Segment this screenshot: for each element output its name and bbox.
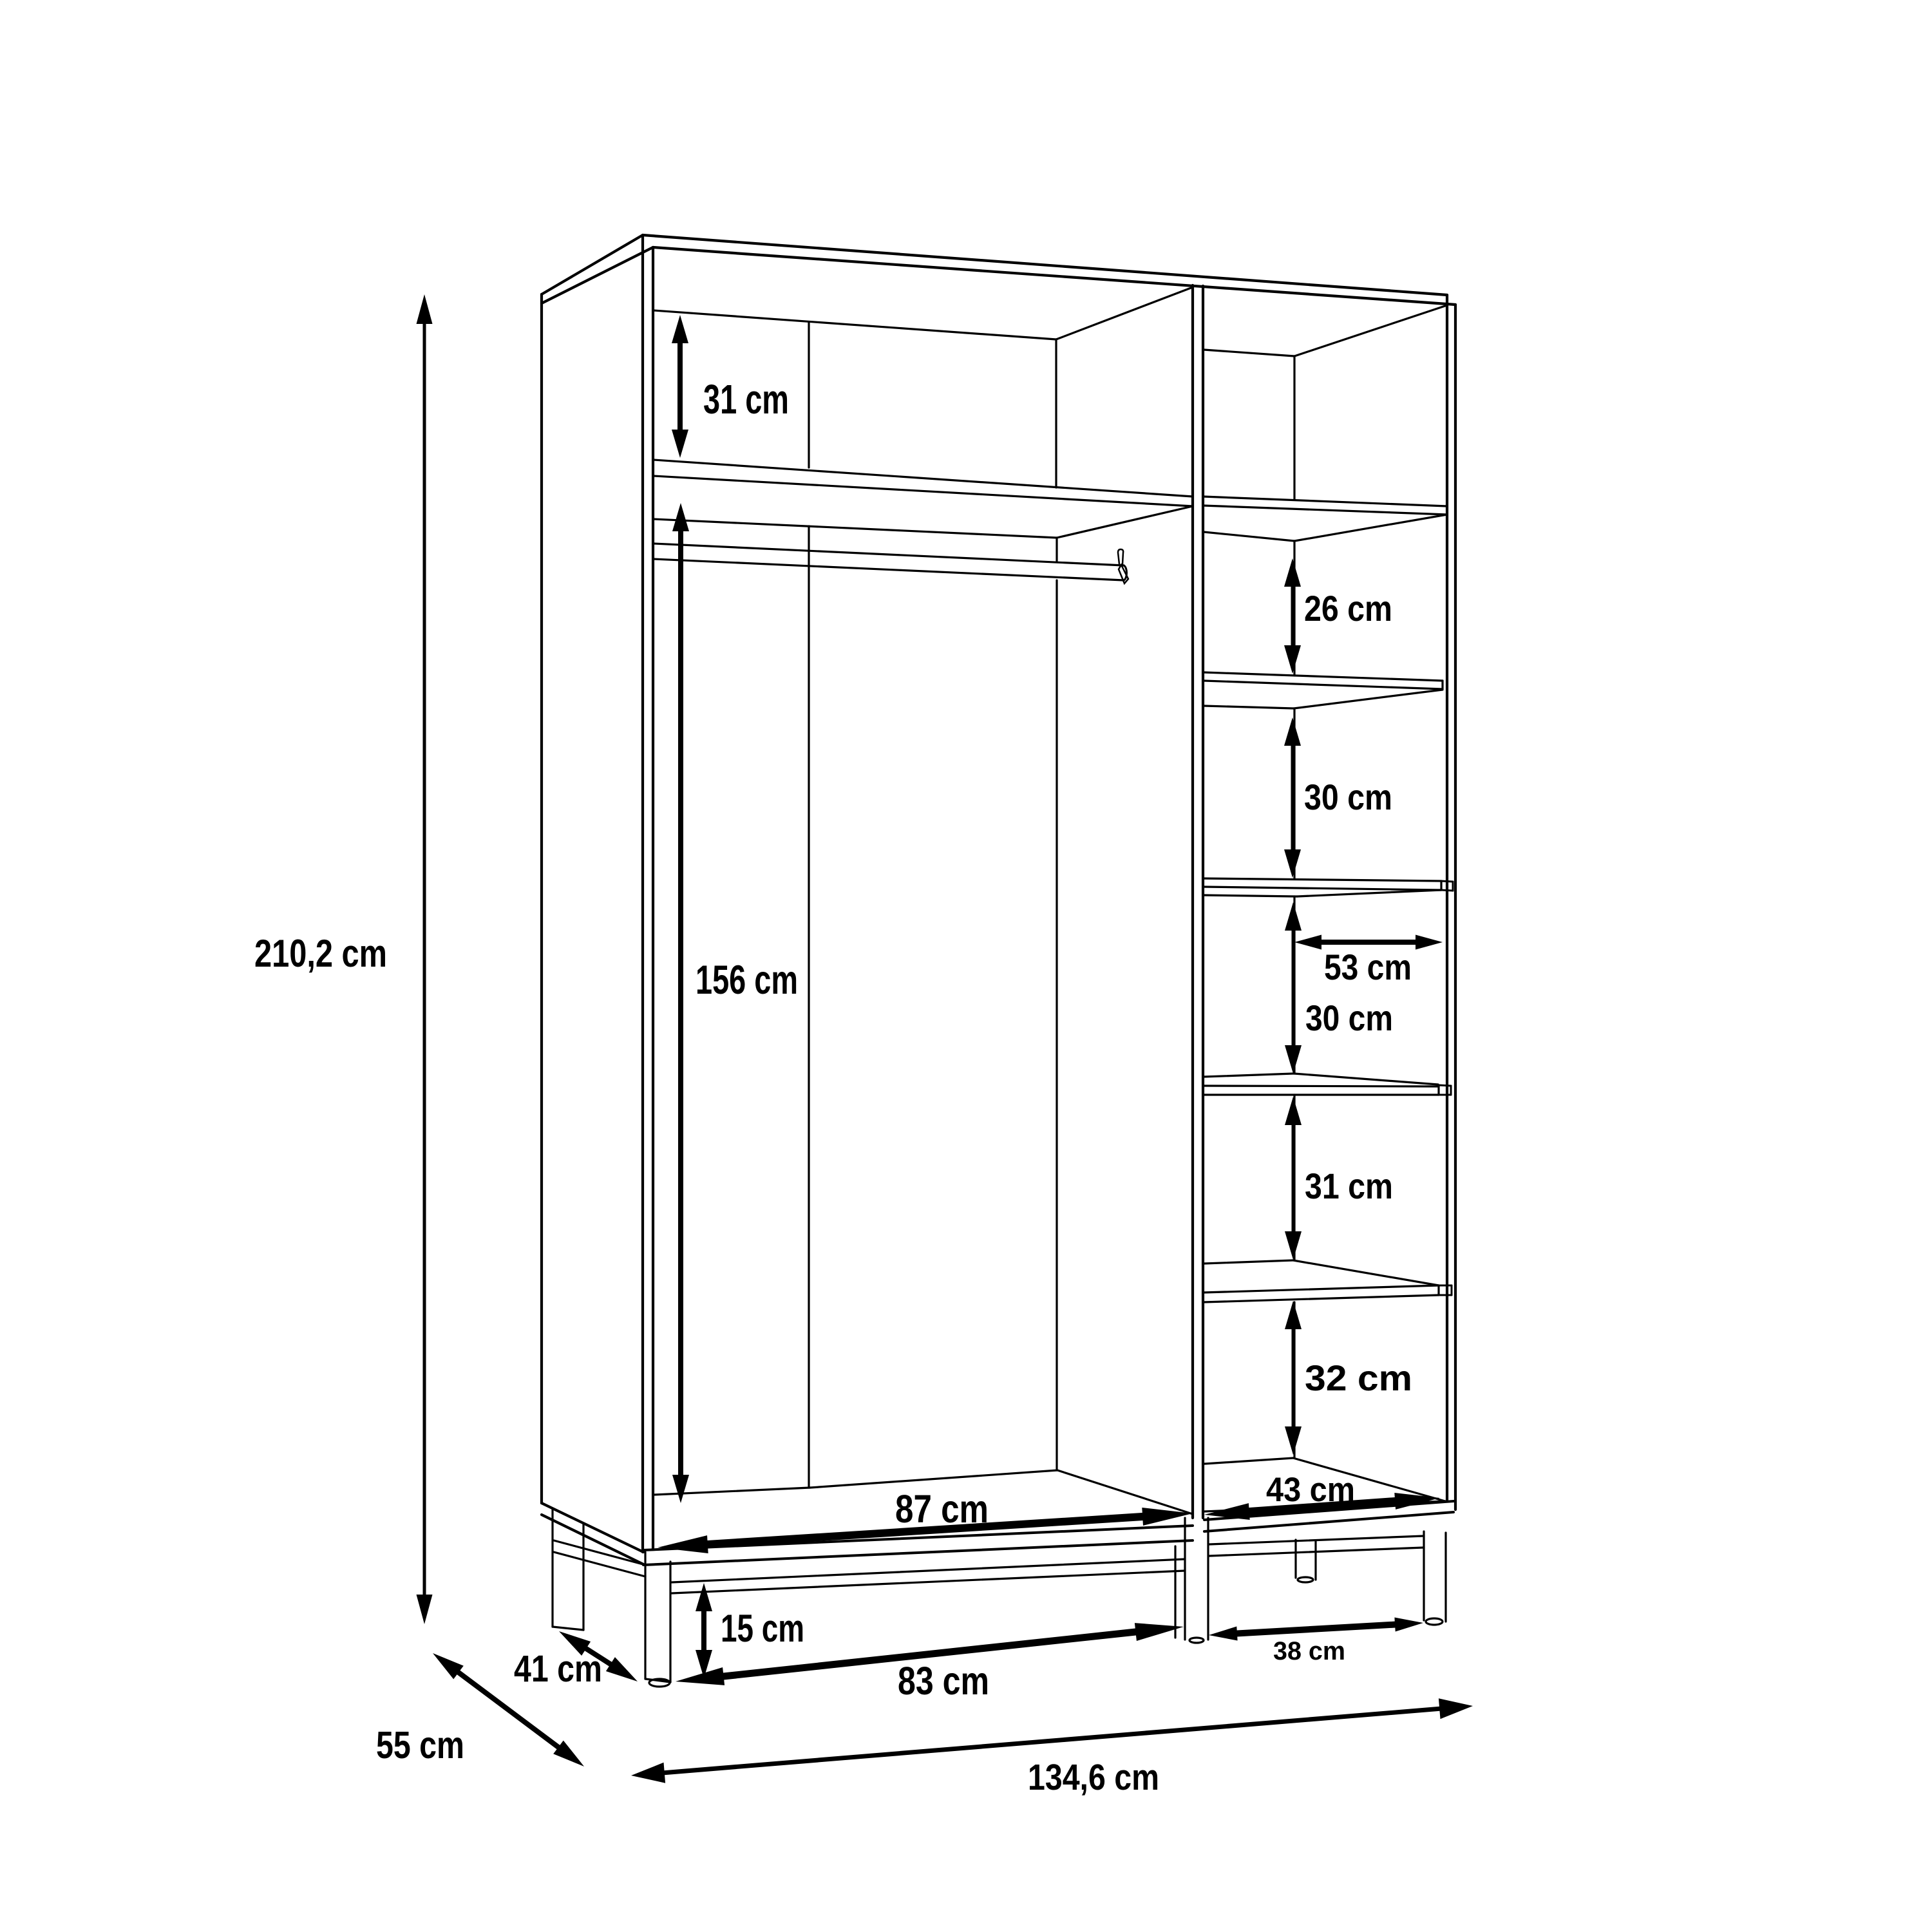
svg-text:83 cm: 83 cm	[898, 1659, 989, 1703]
svg-text:32 cm: 32 cm	[1305, 1358, 1412, 1398]
svg-text:55 cm: 55 cm	[376, 1724, 464, 1766]
svg-text:30 cm: 30 cm	[1305, 998, 1393, 1038]
svg-text:41 cm: 41 cm	[514, 1648, 602, 1690]
svg-text:87 cm: 87 cm	[895, 1487, 989, 1531]
svg-text:38 cm: 38 cm	[1273, 1637, 1345, 1665]
svg-text:53 cm: 53 cm	[1324, 947, 1412, 987]
svg-text:43 cm: 43 cm	[1266, 1471, 1355, 1509]
svg-text:31 cm: 31 cm	[703, 376, 789, 422]
svg-text:26 cm: 26 cm	[1304, 588, 1392, 629]
svg-text:134,6 cm: 134,6 cm	[1028, 1757, 1159, 1798]
svg-text:210,2 cm: 210,2 cm	[254, 932, 387, 975]
svg-text:156 cm: 156 cm	[696, 958, 798, 1003]
svg-text:31 cm: 31 cm	[1305, 1166, 1393, 1206]
svg-text:30 cm: 30 cm	[1304, 777, 1392, 817]
svg-text:15 cm: 15 cm	[721, 1607, 804, 1650]
